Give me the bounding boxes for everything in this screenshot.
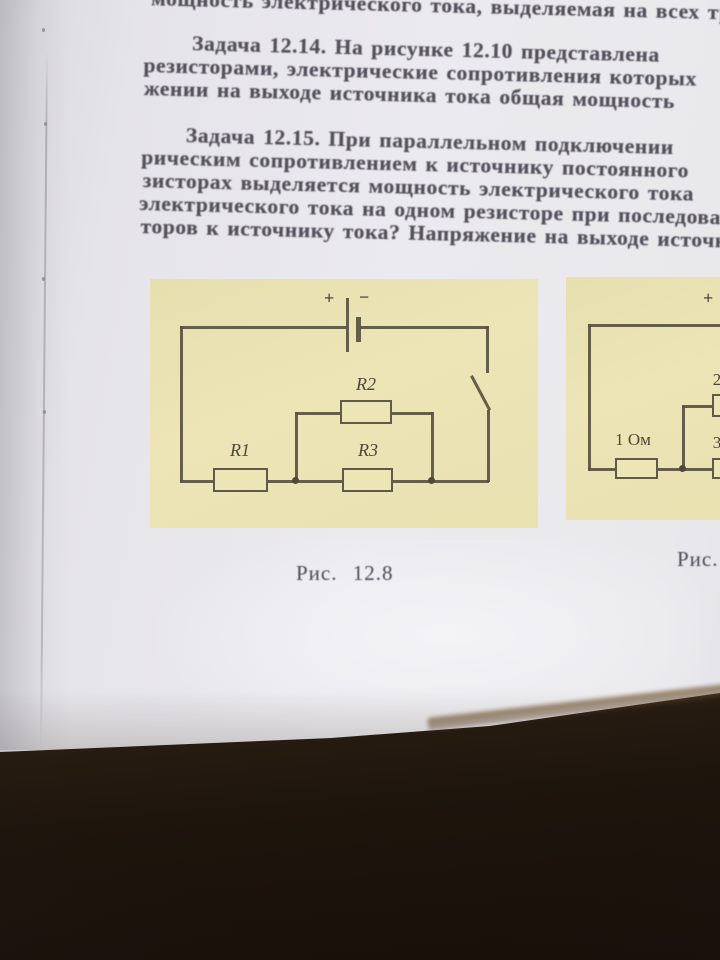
node-dot (428, 477, 435, 484)
resistor-label-r2: R2 (344, 374, 388, 395)
branch-left-wire (295, 412, 298, 480)
resistor-2-label: 2 (710, 370, 720, 390)
battery-short-plate (356, 317, 361, 342)
wire-top (588, 324, 720, 327)
resistor-1om-label: 1 Ом (602, 430, 664, 450)
branch-left-wire (682, 406, 685, 469)
resistor-r1 (213, 468, 268, 492)
figure-right-caption: Рис. (677, 547, 719, 572)
resistor-2-partial (712, 394, 720, 417)
switch-icon (470, 375, 491, 411)
resistor-r2 (340, 400, 392, 424)
figure-12-8: + − R1 R2 R3 (150, 279, 538, 528)
wire-left (180, 326, 183, 482)
node-dot (679, 465, 686, 472)
resistor-r3 (342, 468, 393, 492)
branch-right-wire (431, 412, 434, 480)
resistor-label-r3: R3 (346, 440, 390, 461)
battery-minus-label: − (359, 287, 369, 308)
resistor-3-label: 3 (710, 433, 720, 453)
resistor-1om (615, 458, 658, 479)
battery-plus-label: + (703, 288, 713, 309)
resistor-3-partial (712, 458, 720, 479)
switch-upper-wire (486, 326, 489, 373)
resistor-label-r1: R1 (218, 440, 262, 461)
book-photo: мощность электрического тока, выделяемая… (0, 0, 720, 960)
figure-12-8-caption: Рис. 12.8 (296, 561, 394, 586)
switch-lower-wire (487, 410, 490, 482)
figure-right-partial: + 1 Ом 2 3 (566, 277, 720, 520)
wire-left (588, 324, 591, 470)
wire-top-right (360, 326, 488, 329)
clipped-top-line: мощность электрического тока, выделяемая… (151, 0, 720, 28)
battery-plus-label: + (324, 288, 334, 309)
node-dot (292, 477, 299, 484)
battery-icon (346, 298, 349, 352)
wire-top-left (180, 326, 347, 329)
